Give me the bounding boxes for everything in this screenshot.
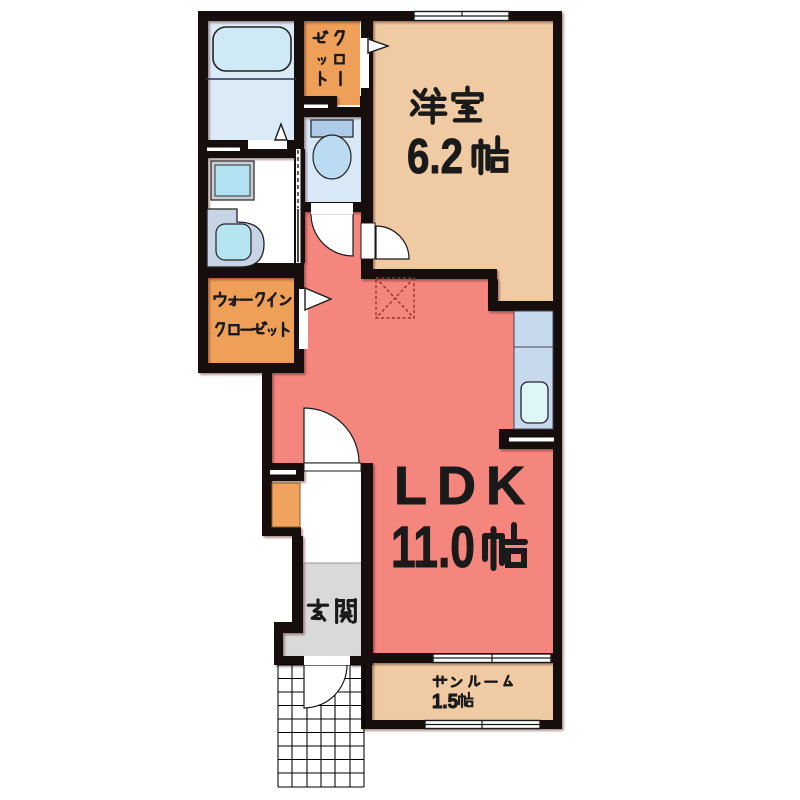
svg-text:6.2: 6.2	[407, 130, 463, 184]
svg-text:1.5: 1.5	[432, 691, 458, 713]
svg-text:11.0: 11.0	[391, 515, 475, 580]
svg-text:LDK: LDK	[394, 456, 535, 516]
